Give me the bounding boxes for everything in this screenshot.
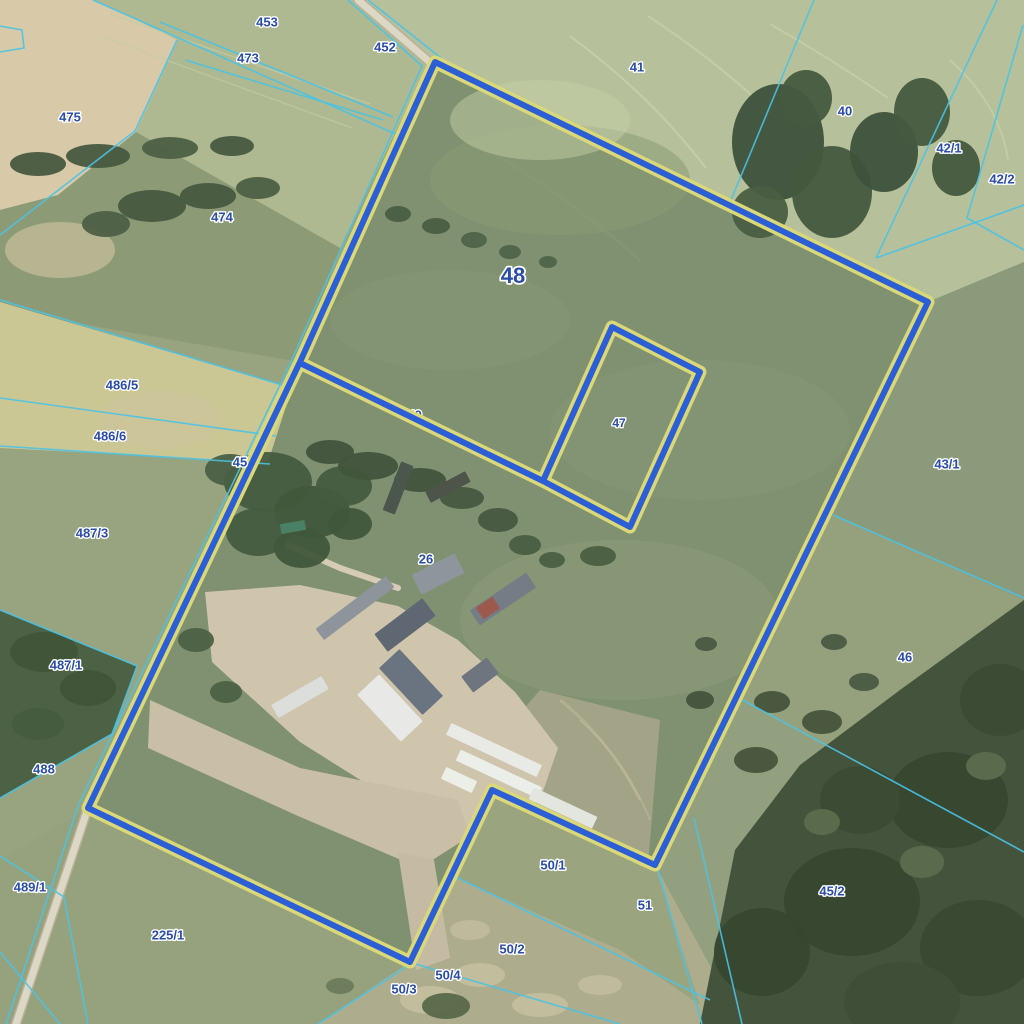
parcel-label-40: 40	[838, 103, 852, 118]
tree-cluster	[306, 440, 354, 464]
tree-cluster	[894, 78, 950, 146]
parcel-label-50-1: 50/1	[540, 857, 565, 872]
tree-cluster	[178, 628, 214, 652]
parcel-label-51: 51	[638, 897, 652, 912]
tree-cluster	[478, 508, 518, 532]
tree-cluster	[539, 256, 557, 268]
parcel-label-48: 48	[501, 263, 525, 288]
parcel-label-474: 474	[211, 209, 233, 224]
tree-cluster	[802, 710, 842, 734]
map-canvas[interactable]: 49453452473414047542/142/247448486/54748…	[0, 0, 1024, 1024]
tree-cluster	[142, 137, 198, 159]
parcel-label-50-4: 50/4	[435, 967, 461, 982]
tree-cluster	[274, 528, 330, 568]
tree-cluster	[900, 846, 944, 878]
parcel-label-452: 452	[374, 39, 396, 54]
tree-cluster	[210, 681, 242, 703]
parcel-label-45-2: 45/2	[819, 883, 844, 898]
tree-cluster	[884, 721, 920, 743]
tree-cluster	[714, 908, 810, 996]
aerial-map-view[interactable]: 49453452473414047542/142/247448486/54748…	[0, 0, 1024, 1024]
tree-cluster	[686, 691, 714, 709]
tree-cluster	[385, 206, 411, 222]
tree-cluster	[461, 232, 487, 248]
tree-cluster	[82, 211, 130, 237]
tree-cluster	[422, 993, 470, 1019]
tree-cluster	[60, 670, 116, 706]
parcel-label-46: 46	[898, 649, 912, 664]
parcel-label-486-5: 486/5	[106, 377, 139, 392]
parcel-label-50-3: 50/3	[391, 981, 416, 996]
tree-cluster	[328, 508, 372, 540]
parcel-label-42-1: 42/1	[936, 140, 961, 155]
tree-cluster	[804, 809, 840, 835]
parcel-label-50-2: 50/2	[499, 941, 524, 956]
tree-cluster	[66, 144, 130, 168]
tree-cluster	[180, 183, 236, 209]
parcel-label-487-1: 487/1	[50, 657, 83, 672]
tree-cluster	[734, 747, 778, 773]
parcel-label-489-1: 489/1	[14, 879, 47, 894]
parcel-label-26: 26	[419, 551, 433, 566]
tree-cluster	[422, 218, 450, 234]
parcel-label-475: 475	[59, 109, 81, 124]
tree-cluster	[966, 752, 1006, 780]
parcel-label-45: 45	[233, 454, 247, 469]
tree-cluster	[118, 190, 186, 222]
tree-cluster	[539, 552, 565, 568]
tree-cluster	[780, 70, 832, 126]
parcel-label-473: 473	[237, 50, 259, 65]
parcel-label-487-3: 487/3	[76, 525, 109, 540]
parcel-label-486-6: 486/6	[94, 428, 127, 443]
terrain-patch	[330, 270, 570, 370]
terrain-patch	[578, 975, 622, 995]
parcel-label-41: 41	[630, 59, 644, 74]
tree-cluster	[236, 177, 280, 199]
parcel-label-42-2: 42/2	[989, 171, 1014, 186]
tree-cluster	[580, 546, 616, 566]
parcel-label-453: 453	[256, 14, 278, 29]
parcel-label-47: 47	[612, 416, 626, 430]
parcel-label-225-1: 225/1	[152, 927, 185, 942]
tree-cluster	[210, 136, 254, 156]
tree-cluster	[499, 245, 521, 259]
parcel-label-43-1: 43/1	[934, 456, 959, 471]
terrain-patch	[512, 993, 568, 1017]
terrain-patch	[460, 540, 780, 700]
tree-cluster	[849, 673, 879, 691]
tree-cluster	[12, 708, 64, 740]
tree-cluster	[326, 978, 354, 994]
tree-cluster	[821, 634, 847, 650]
terrain-patch	[450, 920, 490, 940]
tree-cluster	[509, 535, 541, 555]
tree-cluster	[695, 637, 717, 651]
tree-cluster	[10, 152, 66, 176]
parcel-label-488: 488	[33, 761, 55, 776]
